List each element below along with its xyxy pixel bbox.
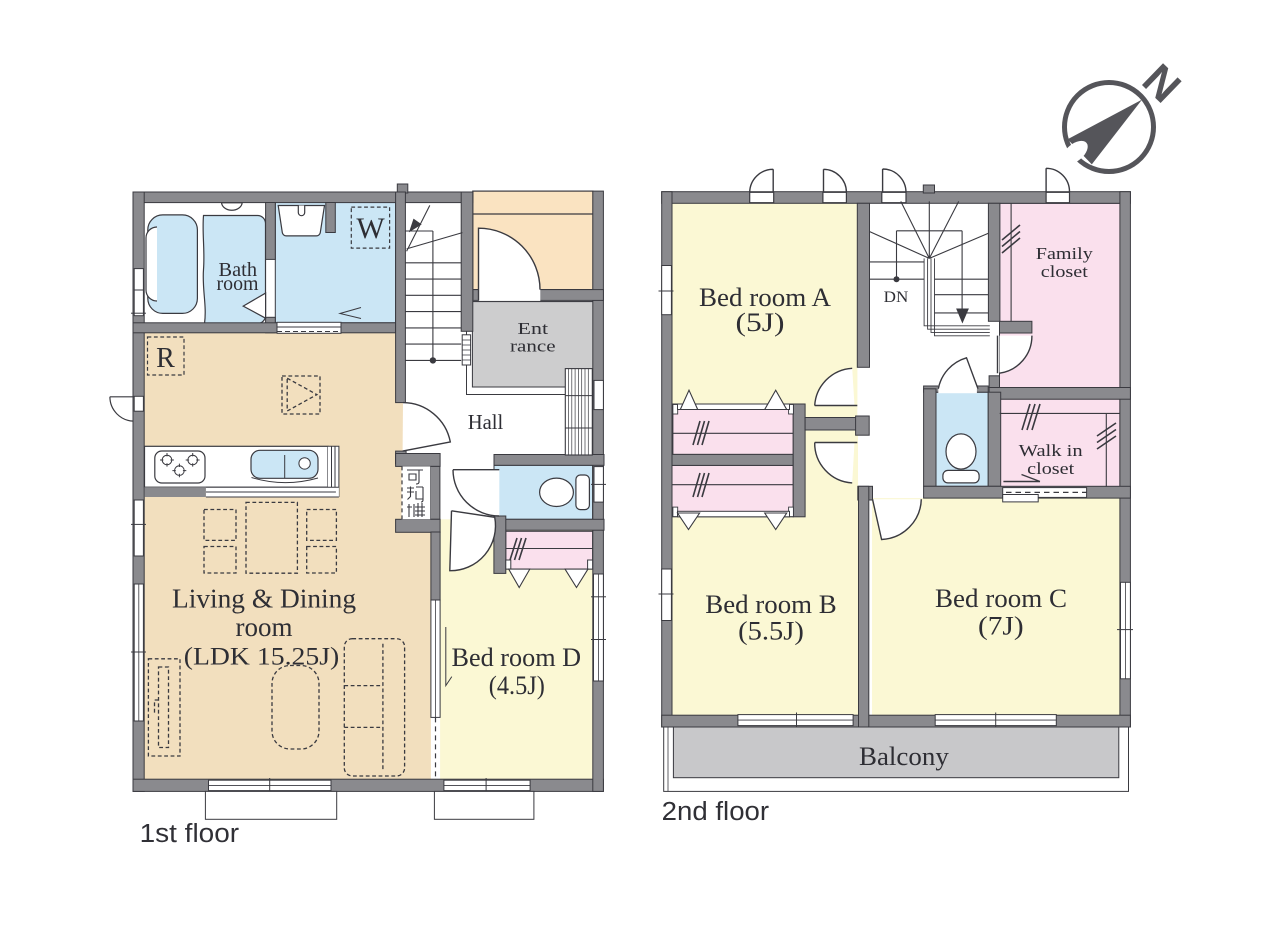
svg-text:Bed room B: Bed room B <box>705 590 836 619</box>
svg-text:closet: closet <box>1027 459 1074 478</box>
svg-text:2nd floor: 2nd floor <box>662 798 770 826</box>
svg-text:R: R <box>156 343 175 374</box>
svg-text:DN: DN <box>884 289 909 306</box>
svg-text:room: room <box>236 612 293 642</box>
svg-text:(5.5J): (5.5J) <box>738 617 804 646</box>
svg-text:room: room <box>217 273 259 295</box>
svg-text:(5J): (5J) <box>736 308 785 337</box>
svg-text:Walk in: Walk in <box>1019 441 1084 460</box>
svg-text:Living & Dining: Living & Dining <box>172 584 356 614</box>
svg-text:Hall: Hall <box>468 410 504 434</box>
svg-text:rance: rance <box>510 337 556 356</box>
svg-text:1st floor: 1st floor <box>140 820 240 848</box>
svg-text:Ent: Ent <box>518 319 549 338</box>
svg-text:Family: Family <box>1036 244 1094 263</box>
svg-text:(4.5J): (4.5J) <box>489 671 545 700</box>
svg-text:Bed room C: Bed room C <box>935 584 1067 613</box>
svg-text:(LDK 15.25J): (LDK 15.25J) <box>184 644 340 671</box>
svg-text:Bed room D: Bed room D <box>452 643 582 672</box>
svg-text:closet: closet <box>1041 262 1088 281</box>
svg-text:(7J): (7J) <box>978 612 1024 641</box>
svg-text:W: W <box>356 212 385 245</box>
svg-text:Balcony: Balcony <box>859 742 949 771</box>
